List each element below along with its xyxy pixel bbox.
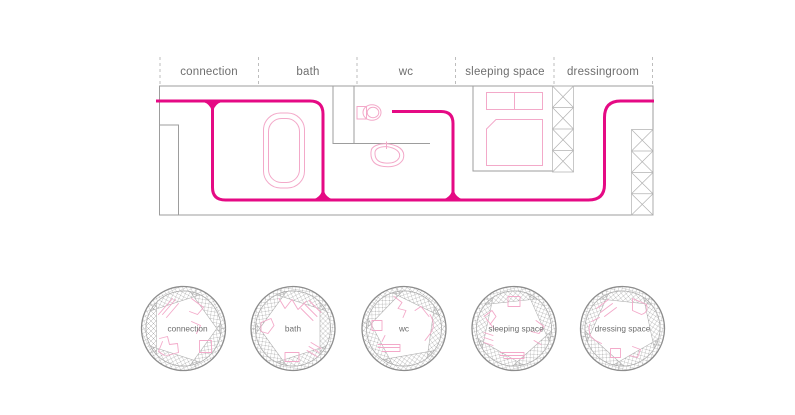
hatch-column-left: [553, 86, 574, 172]
plan-furniture: [264, 93, 543, 189]
tube-label-wc: wc: [398, 324, 409, 334]
diagram-svg: connection bath wc sleeping space dressi…: [0, 0, 795, 415]
toilet: [357, 105, 381, 121]
route-wc-branch: [392, 112, 453, 201]
plan-label-connection: connection: [180, 66, 238, 78]
plan-label-wc: wc: [398, 66, 414, 78]
route-entry-and-loop-right: [156, 101, 323, 200]
tube-section-sleeping-space: sleeping space: [455, 267, 575, 387]
plan-label-dressingroom: dressingroom: [567, 66, 639, 78]
tube-label-bath: bath: [285, 324, 302, 334]
plan-outline: [160, 86, 654, 215]
plan-label-sleeping-space: sleeping space: [465, 66, 545, 78]
sink: [371, 142, 404, 167]
tube-section-connection: connection: [129, 272, 239, 382]
route-main-line: [213, 101, 655, 200]
bathtub: [264, 113, 305, 188]
tube-label-connection: connection: [167, 324, 208, 334]
route-junction-top: [197, 101, 229, 117]
circulation-route: [156, 101, 654, 200]
bed: [487, 93, 543, 166]
wall-bed-alcove: [473, 86, 553, 171]
floor-plan: connection bath wc sleeping space dressi…: [156, 57, 654, 215]
tunnel-apartment-diagram: connection bath wc sleeping space dressi…: [0, 0, 795, 415]
tube-section-wc: wc: [353, 276, 454, 378]
plan-label-bath: bath: [296, 66, 319, 78]
route-junction-wc: [437, 184, 469, 200]
tube-label-sleeping-space: sleeping space: [488, 324, 544, 334]
tube-sections: connection bath: [129, 266, 681, 388]
wall-step-left: [160, 125, 179, 215]
wall-wc-counter: [333, 86, 430, 144]
hatch-column-right: [632, 130, 654, 216]
plan-walls: [160, 86, 654, 215]
tube-section-dressing-space: dressing space: [562, 267, 682, 387]
tube-section-bath: bath: [233, 266, 355, 388]
route-junction-bath: [307, 184, 339, 200]
tube-label-dressing-space: dressing space: [595, 324, 651, 334]
